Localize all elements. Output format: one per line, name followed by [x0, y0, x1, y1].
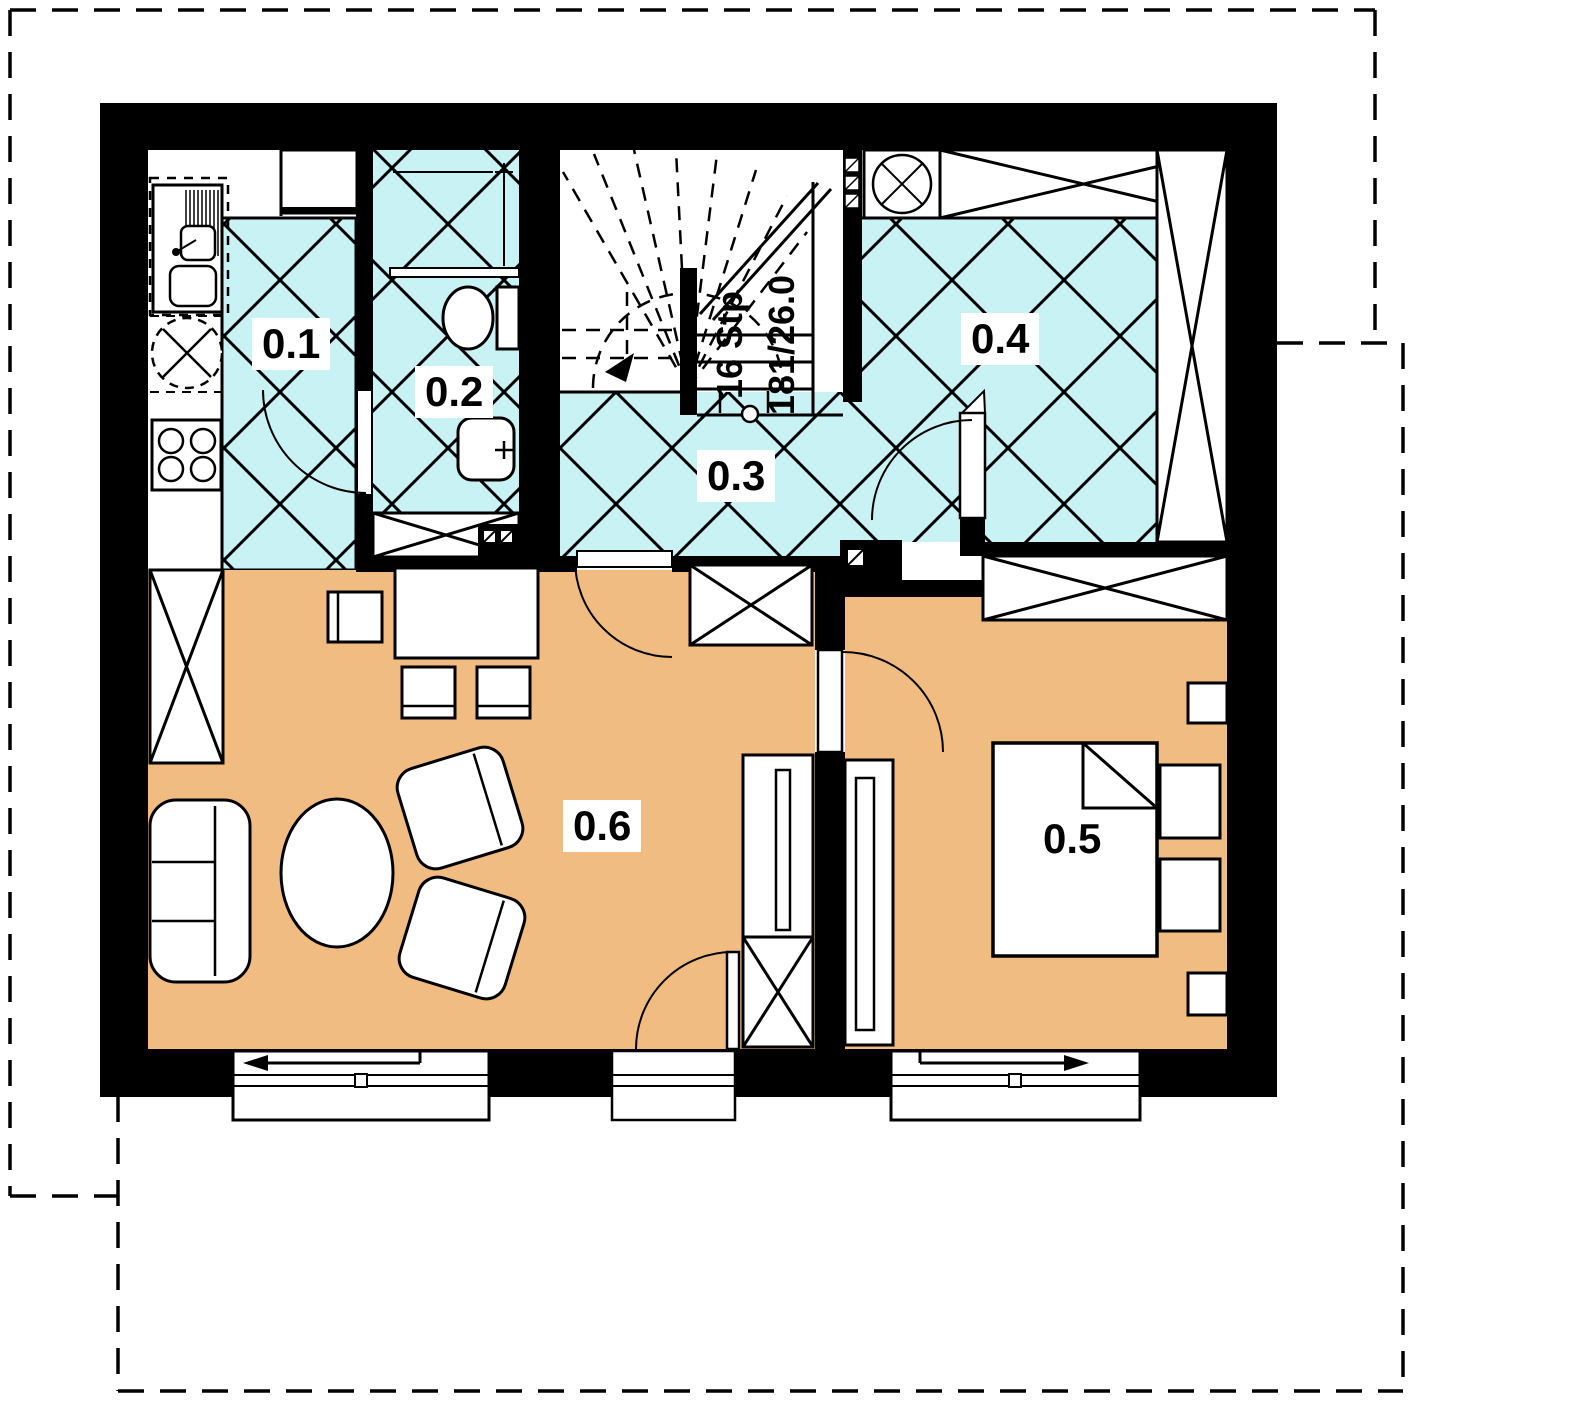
wall-kitchen-bath-upper — [356, 150, 373, 390]
wall-right — [1227, 103, 1277, 1097]
bedroom-shelf-top — [1188, 683, 1227, 723]
bedroom-window-mullion — [1009, 1074, 1021, 1087]
wall-utility-bottom — [980, 542, 1227, 556]
room-label-bathroom: 0.2 — [415, 366, 493, 418]
sofa — [150, 800, 250, 982]
toilet-tank — [497, 287, 519, 349]
room-label-kitchen: 0.1 — [252, 318, 330, 370]
stair-dimension-annotation: 181/26.0 — [761, 257, 803, 433]
kitchen-tile-floor — [222, 218, 356, 570]
wall-utility-door-stub — [960, 515, 985, 556]
room-label-bedroom: 0.5 — [1033, 813, 1111, 865]
dining-chair — [328, 592, 382, 642]
wall-living-bedroom-upper — [815, 572, 845, 650]
wall-top — [100, 103, 1277, 150]
stool-2 — [477, 667, 530, 718]
wall-living-bedroom-lower — [815, 752, 845, 1049]
wall-left — [100, 103, 148, 1097]
living-window-mullion — [355, 1074, 367, 1087]
floor-plan-drawing — [0, 0, 1574, 1401]
bedroom-door-leaf — [818, 650, 842, 752]
windows — [233, 1051, 1140, 1120]
room-label-utility: 0.4 — [961, 313, 1039, 365]
stool-1 — [402, 667, 455, 718]
bath-shelf — [390, 268, 519, 277]
dining-table — [395, 568, 538, 658]
living-door-leaf — [577, 551, 672, 567]
room-label-hallway: 0.3 — [697, 450, 775, 502]
bedroom-wardrobe-column — [845, 760, 893, 1045]
bathroom-tile-floor — [373, 150, 519, 558]
nightstand-2 — [1160, 859, 1220, 931]
toilet-bowl — [443, 287, 493, 349]
wall-bath-stairs — [519, 150, 560, 558]
coffee-table — [281, 799, 393, 947]
tall-cabinet — [743, 755, 813, 937]
bedroom-shelf-bottom — [1188, 973, 1227, 1015]
sink-bowl-small — [181, 226, 215, 260]
stair-steps-annotation: 16 Stp — [709, 257, 751, 433]
utility-door-leaf — [960, 413, 985, 518]
floor-plan: 0.1 0.2 0.3 0.4 0.5 0.6 16 Stp 181/26.0 — [0, 0, 1574, 1401]
sink-bowl-large — [170, 266, 216, 306]
terrace-door-leaf — [727, 952, 739, 1049]
stair-upper-treads-dashed — [562, 330, 678, 358]
nightstand-1 — [1160, 765, 1220, 838]
bathroom-door-leaf — [357, 390, 372, 495]
fridge — [281, 150, 357, 213]
room-label-living: 0.6 — [563, 800, 641, 852]
